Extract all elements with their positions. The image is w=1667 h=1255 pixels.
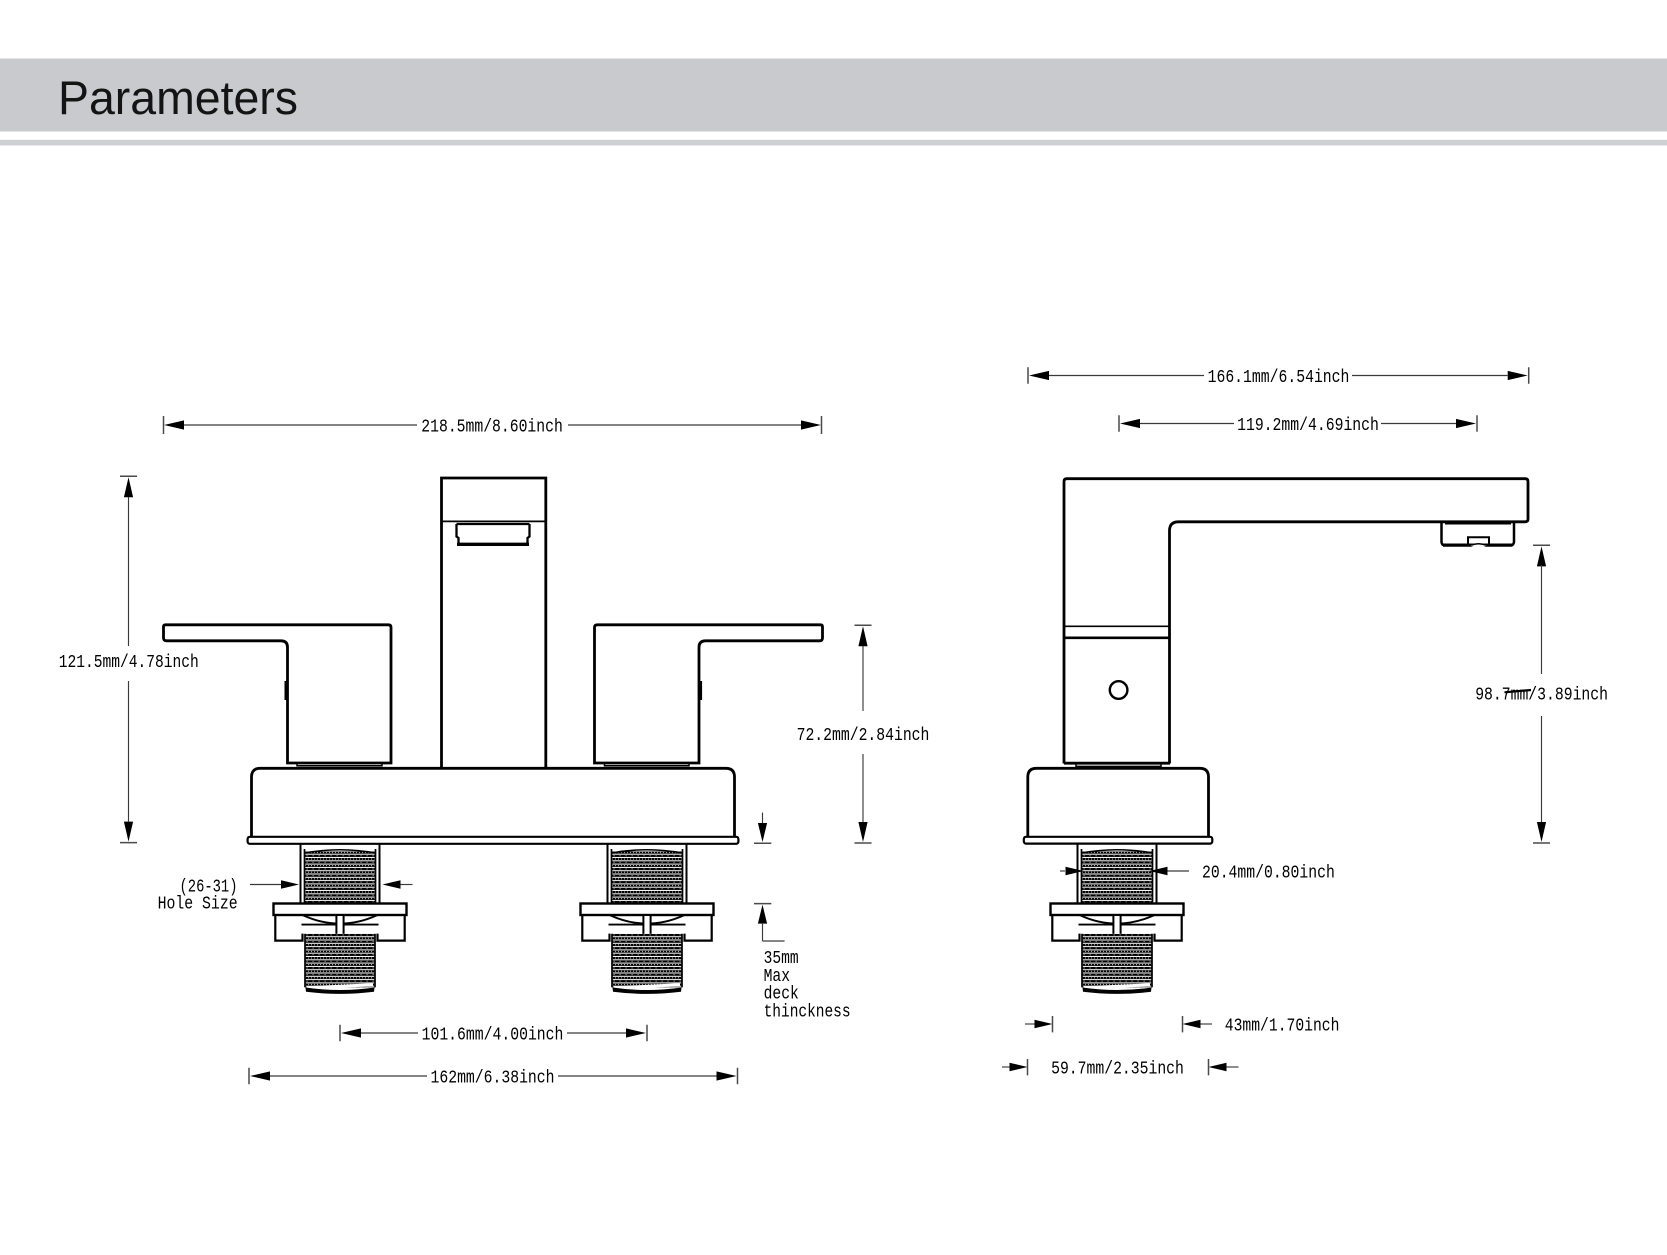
svg-text:20.4mm/0.80inch: 20.4mm/0.80inch bbox=[1202, 862, 1335, 883]
svg-text:162mm/6.38inch: 162mm/6.38inch bbox=[431, 1067, 555, 1088]
svg-text:98.7mm/3.89inch: 98.7mm/3.89inch bbox=[1475, 684, 1608, 705]
svg-text:121.5mm/4.78inch: 121.5mm/4.78inch bbox=[59, 652, 199, 673]
svg-text:72.2mm/2.84inch: 72.2mm/2.84inch bbox=[797, 725, 930, 746]
svg-text:119.2mm/4.69inch: 119.2mm/4.69inch bbox=[1237, 415, 1379, 436]
svg-text:59.7mm/2.35inch: 59.7mm/2.35inch bbox=[1051, 1058, 1184, 1079]
svg-text:thinckness: thinckness bbox=[764, 1002, 851, 1023]
svg-text:166.1mm/6.54inch: 166.1mm/6.54inch bbox=[1208, 367, 1350, 388]
svg-text:218.5mm/8.60inch: 218.5mm/8.60inch bbox=[421, 416, 563, 437]
svg-text:Parameters: Parameters bbox=[58, 72, 298, 125]
svg-text:43mm/1.70inch: 43mm/1.70inch bbox=[1225, 1015, 1340, 1036]
svg-text:Hole Size: Hole Size bbox=[158, 894, 238, 915]
svg-text:101.6mm/4.00inch: 101.6mm/4.00inch bbox=[422, 1024, 564, 1045]
